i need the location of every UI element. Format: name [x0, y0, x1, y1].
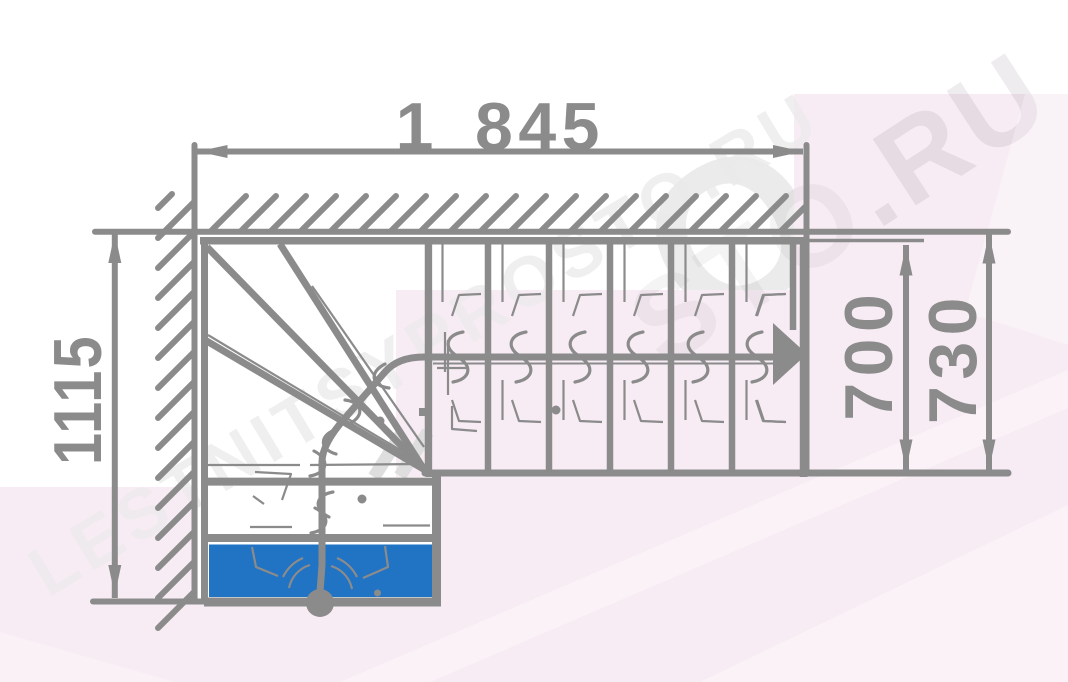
- svg-text:700: 700: [831, 288, 907, 421]
- svg-text:1: 1: [396, 89, 436, 165]
- svg-text:845: 845: [475, 89, 605, 165]
- svg-text:730: 730: [915, 291, 991, 424]
- svg-text:1115: 1115: [41, 334, 116, 465]
